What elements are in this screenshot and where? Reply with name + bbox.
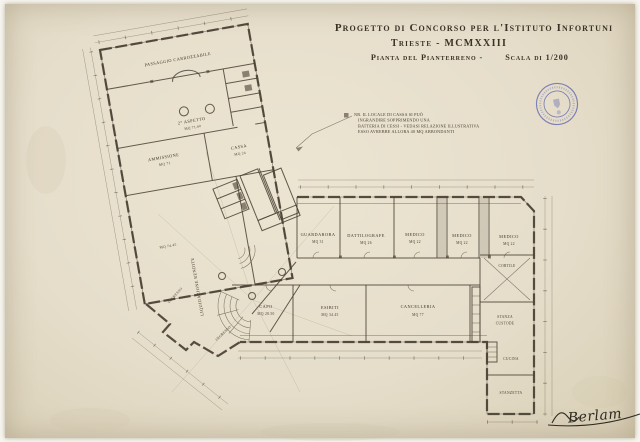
stair-flight — [240, 169, 276, 221]
room-label-medico-2: MEDICO — [452, 233, 472, 238]
title-block: Progetto di Concorso per l'Istituto Info… — [335, 22, 613, 62]
title-line-3-left: Pianta del Pianterreno - — [371, 53, 483, 62]
room-label-cortile: CORTILE — [498, 264, 516, 268]
room-label-esibiti: ESIBITI — [321, 305, 339, 310]
room-label-cancelleria: CANCELLERIA — [401, 304, 436, 309]
room-area-esibiti: MQ 34.45 — [321, 313, 338, 317]
room-area-ammissione: MQ 71 — [159, 161, 171, 167]
inner-corner-steps — [238, 245, 255, 268]
photo-frame: Progetto di Concorso per l'Istituto Info… — [0, 0, 640, 442]
room-label-cucina: CUCINA — [503, 357, 519, 361]
note-line-3: BATTERIA DI CESSI - VEDASI RELAZIONE ILL… — [358, 123, 479, 128]
note-line-4: ESSO AVREBBE ALLORA 40 MQ ABBONDANTI — [358, 129, 455, 134]
service-stair — [472, 287, 480, 342]
room-label-stanza-custode-1: STANZA — [497, 315, 513, 319]
note-line-2: INGRANDIRE SOPPRIMENDO UNA — [358, 118, 430, 123]
stair-flight — [263, 168, 299, 220]
room-area-medico-1: MQ 22 — [409, 240, 421, 244]
column — [179, 106, 189, 116]
room-area-dattilografe: MQ 26 — [360, 241, 372, 245]
signature-text: Berlam — [566, 406, 623, 427]
title-line-2: Trieste - MCMXXIII — [391, 38, 507, 49]
room-label-liquidazione: LIQUIDAZIONE RENDITE — [189, 257, 204, 316]
nb-annotation: NB. IL LOCALE DI CASSA SI PUÒ INGRANDIRE… — [296, 112, 479, 152]
room-area-aspetto: MQ 71.60 — [184, 124, 202, 131]
floor-plan-drawing: Progetto di Concorso per l'Istituto Info… — [0, 0, 640, 442]
room-area-cancelleria: MQ 77 — [412, 313, 424, 317]
paper-stains — [26, 126, 628, 441]
right-wing: GUARDAROBA MQ 31 DATTILOGRAFE MQ 26 MEDI… — [132, 180, 552, 422]
room-area-cassa: MQ 24 — [234, 151, 246, 157]
left-wing: PASSAGGIO CARROZZABILE 2° ASPETTO MQ 71.… — [81, 9, 299, 328]
round-stamp-icon — [533, 80, 582, 129]
room-label-passaggio: PASSAGGIO CARROZZABILE — [144, 51, 211, 68]
stair-hall: INGRESSO INGRESSO — [146, 152, 352, 392]
room-label-stanza-custode-2: CUSTODE — [496, 322, 515, 326]
room-area-medico-2: MQ 22 — [456, 241, 468, 245]
room-label-guardaroba: GUARDAROBA — [301, 232, 336, 237]
apse-niche — [171, 68, 200, 82]
room-area-capo: MQ 28.50 — [257, 312, 274, 316]
note-line-1: NB. IL LOCALE DI CASSA SI PUÒ — [354, 112, 423, 117]
room-label-medico-3: MEDICO — [499, 234, 519, 239]
left-wing-outer-wall — [100, 24, 293, 304]
title-line-3-scale: Scala di 1/200 — [505, 53, 569, 62]
title-line-1: Progetto di Concorso per l'Istituto Info… — [335, 22, 613, 34]
room-label-stanzetta: STANZETTA — [500, 391, 523, 395]
room-area-guardaroba: MQ 31 — [312, 240, 324, 244]
room-label-ingresso-1: INGRESSO — [167, 286, 183, 304]
room-area-medico-3: MQ 22 — [503, 242, 515, 246]
construction-lines — [158, 152, 352, 392]
room-label-ammissione: AMMISSIONE — [148, 152, 180, 162]
architect-signature: Berlam — [548, 406, 640, 427]
room-label-aspetto: 2° ASPETTO — [177, 116, 205, 126]
room-label-cassa: CASSA — [231, 143, 248, 151]
column — [205, 104, 215, 114]
room-label-dattilografe: DATTILOGRAFE — [347, 233, 385, 238]
room-label-capo: CAPO — [259, 304, 272, 309]
room-area-liquidazione: MQ 74.45 — [159, 243, 177, 250]
room-label-medico-1: MEDICO — [405, 232, 425, 237]
porch-column — [219, 273, 226, 280]
